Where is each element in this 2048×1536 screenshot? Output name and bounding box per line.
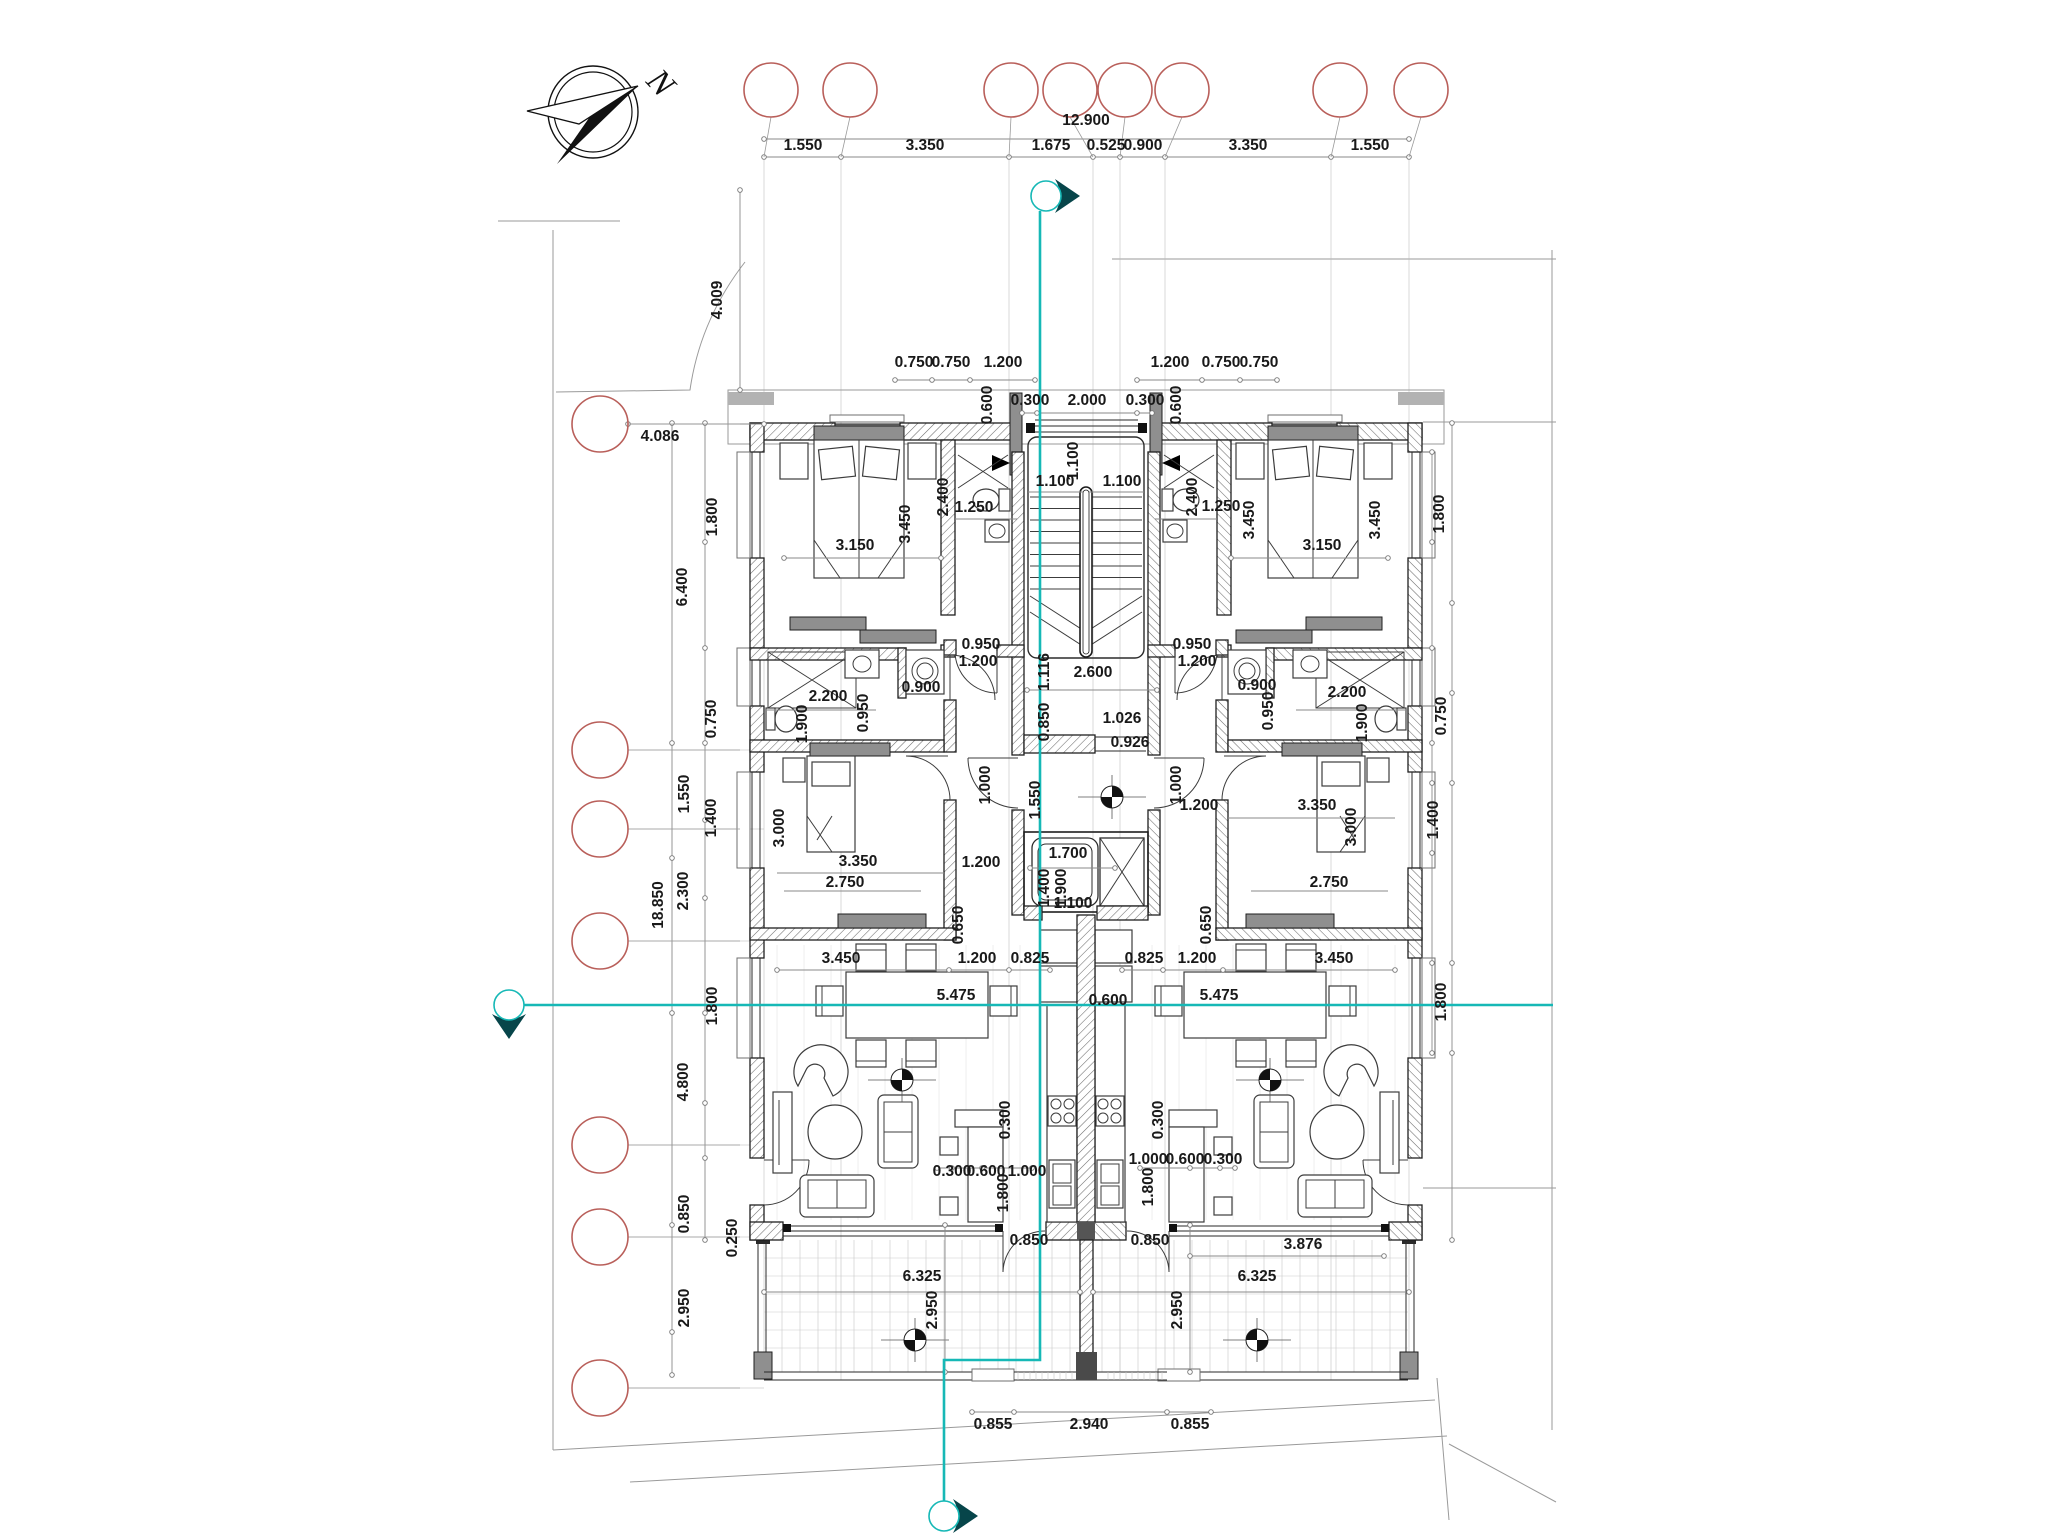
dim-label: 2.400 [1184,478,1201,517]
grid-bubble [572,913,628,969]
dim-label: 1.200 [1178,950,1217,967]
dim-label: 0.300 [1126,392,1165,409]
dim-label: 3.450 [1241,501,1258,540]
dim-label: 0.750 [1433,697,1450,736]
dim-label: 0.600 [1168,386,1185,425]
north-compass-icon: N [527,61,683,164]
dim-label: 4.800 [675,1063,692,1102]
dim-label: 3.000 [1343,808,1360,847]
dim-label: 2.950 [924,1291,941,1330]
dim-label: 0.750 [1202,354,1241,371]
dim-label: 3.350 [1229,137,1268,154]
dim-label: 3.876 [1284,1236,1323,1253]
dim-label: 0.750 [703,700,720,739]
dim-label: 2.600 [1074,664,1113,681]
dim-label: 0.850 [1010,1232,1049,1249]
section-marker-icon [494,990,524,1020]
dim-label: 1.800 [1140,1168,1157,1207]
dim-label: 3.450 [897,505,914,544]
terrace-left [754,1232,1086,1381]
grid-bubble [1043,63,1097,117]
grid-bubble [1155,63,1209,117]
dim-label: 0.750 [932,354,971,371]
grid-bubble [1098,63,1152,117]
stair-rail [1080,487,1092,657]
dim-label: 1.026 [1103,710,1142,727]
dim-label: 1.900 [794,705,811,744]
dim-label: 1.400 [1425,801,1442,840]
dim-label: 1.550 [1351,137,1390,154]
dim-label: 12.900 [1062,112,1109,129]
grid-bubble [823,63,877,117]
dim-label: 1.675 [1032,137,1071,154]
dim-label: 0.750 [895,354,934,371]
dim-label: 0.250 [724,1219,741,1258]
dim-label: 0.600 [1166,1151,1205,1168]
compass-north-label: N [638,61,683,105]
dim-label: 0.850 [676,1195,693,1234]
dim-label: 3.350 [906,137,945,154]
dim-label: 1.700 [1049,845,1088,862]
dim-label: 0.825 [1011,950,1050,967]
dim-label: 4.009 [709,280,726,319]
dim-label: 3.450 [822,950,861,967]
dim-label: 1.200 [958,950,997,967]
dim-label: 18.850 [650,881,667,928]
dim-label: 3.450 [1367,501,1384,540]
dim-label: 5.475 [937,987,976,1004]
dim-label: 0.300 [933,1163,972,1180]
dim-label: 2.300 [675,872,692,911]
dim-label: 0.525 [1087,137,1126,154]
dim-label: 2.000 [1068,392,1107,409]
dim-label: 1.550 [784,137,823,154]
grid-bubble [572,1117,628,1173]
dim-label: 2.950 [676,1289,693,1328]
dim-label: 0.600 [1089,992,1128,1009]
floor-plan-canvas: 12.9001.5503.3501.6750.5250.9003.3501.55… [0,0,2048,1536]
dim-label: 6.325 [1238,1268,1277,1285]
dim-label: 1.200 [959,653,998,670]
dim-label: 1.550 [676,775,693,814]
dim-label: 0.926 [1111,734,1150,751]
dim-label: 3.150 [1303,537,1342,554]
dim-label: 1.000 [977,766,994,805]
dim-label: 1.800 [995,1174,1012,1213]
dim-label: 1.800 [1433,983,1450,1022]
dim-label: 1.200 [1180,797,1219,814]
grid-bubble [984,63,1038,117]
grid-bubble [1313,63,1367,117]
dim-label: 1.000 [1129,1151,1168,1168]
dim-label: 2.950 [1169,1291,1186,1330]
grid-bubble [572,801,628,857]
dim-label: 2.940 [1070,1416,1109,1433]
dim-label: 0.300 [997,1101,1014,1140]
dim-label: 1.550 [1027,781,1044,820]
dim-label: 1.900 [1354,704,1371,743]
grid-bubble [572,722,628,778]
dim-label: 0.900 [1238,677,1277,694]
dim-label: 0.650 [1198,906,1215,945]
dim-label: 0.950 [1173,636,1212,653]
dim-label: 0.600 [979,386,996,425]
dim-label: 0.650 [950,906,967,945]
grid-bubble [572,1360,628,1416]
dim-label: 2.200 [1328,684,1367,701]
dim-label: 0.825 [1125,950,1164,967]
dim-label: 6.400 [674,568,691,607]
dim-label: 6.325 [903,1268,942,1285]
dim-label: 1.250 [1202,498,1241,515]
dim-label: 0.900 [902,679,941,696]
dim-label: 1.800 [704,498,721,537]
dim-label: 3.450 [1315,950,1354,967]
dim-label: 1.200 [1151,354,1190,371]
dim-label: 0.855 [1171,1416,1210,1433]
dim-label: 1.100 [1054,895,1093,912]
dim-label: 3.350 [839,853,878,870]
dim-label: 2.750 [1310,874,1349,891]
dim-label: 1.800 [704,987,721,1026]
dim-label: 3.000 [771,809,788,848]
dim-label: 2.750 [826,874,865,891]
dim-label: 0.850 [1036,703,1053,742]
grid-bubble [744,63,798,117]
section-marker-icon [929,1501,959,1531]
dim-label: 2.400 [935,478,952,517]
dim-label: 1.250 [955,499,994,516]
dim-label: 1.200 [1178,653,1217,670]
dim-label: 0.950 [1260,692,1277,731]
dim-label: 1.000 [1008,1163,1047,1180]
dim-label: 4.086 [641,428,680,445]
dim-label: 0.300 [1204,1151,1243,1168]
dim-label: 1.800 [1431,495,1448,534]
dim-label: 0.855 [974,1416,1013,1433]
dim-label: 2.200 [809,688,848,705]
grid-bubble [1394,63,1448,117]
dim-label: 0.750 [1240,354,1279,371]
dim-label: 1.200 [984,354,1023,371]
dim-label: 3.350 [1298,797,1337,814]
site-boundary [498,221,1556,1520]
terrace-right [1086,1232,1418,1381]
dim-label: 0.900 [1124,137,1163,154]
dim-label: 1.100 [1103,473,1142,490]
section-marker-icon [1031,181,1061,211]
dim-label: 1.400 [1036,869,1053,908]
dim-label: 0.950 [962,636,1001,653]
dim-label: 1.116 [1036,653,1053,691]
grid-bubble [572,1209,628,1265]
dim-label: 0.850 [1131,1232,1170,1249]
dim-label: 0.950 [855,694,872,733]
grid-bubble [572,396,628,452]
dim-label: 1.100 [1036,473,1075,490]
dim-label: 5.475 [1200,987,1239,1004]
dim-label: 1.200 [962,854,1001,871]
dim-label: 1.400 [703,799,720,838]
floor-plan-page: 12.9001.5503.3501.6750.5250.9003.3501.55… [0,0,2048,1536]
dim-label: 3.150 [836,537,875,554]
dim-label: 0.300 [1150,1101,1167,1140]
dim-label: 0.300 [1011,392,1050,409]
